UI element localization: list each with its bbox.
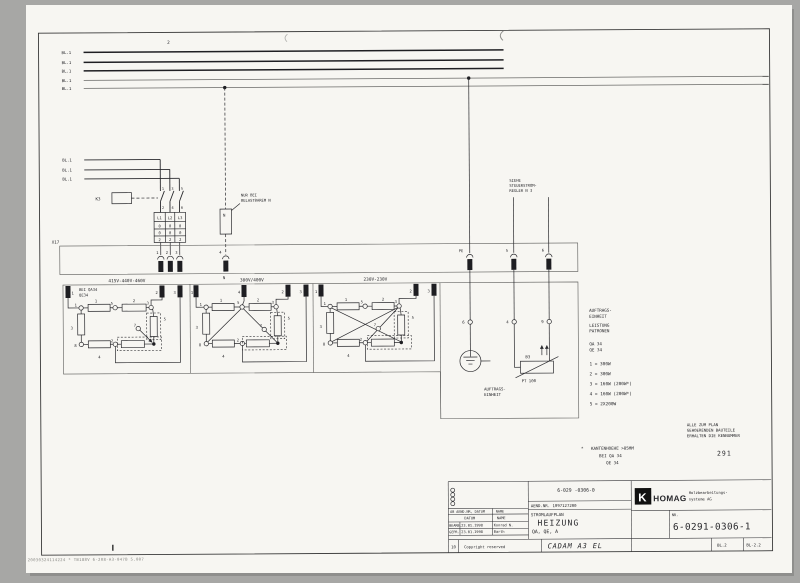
bus-label-4: BL.1 [62, 86, 72, 91]
drawing-title: HEIZUNG [537, 518, 579, 527]
scan-code: 20030324114224 * TB188V 6-208-A3-047B 5.… [28, 557, 145, 563]
bus-label-3: BL.1 [62, 78, 72, 83]
auftrags-label-1: AUFTRAGS- [484, 386, 506, 391]
company-line-1: Holzbearbeitungs- [689, 490, 728, 495]
legend-item-1: 1 = 300W [589, 361, 611, 367]
sheet-ref-top: 2 [167, 40, 170, 46]
block-header-l1: L1 [157, 215, 162, 220]
block-header-l2: L2 [168, 215, 173, 220]
company-line-2: systeme AG [689, 496, 713, 501]
sensor-type: PT 100 [522, 378, 537, 383]
bus-label-0: BL.1 [62, 50, 72, 55]
section-note-1: BEI QA34 [79, 287, 98, 292]
feeder-label-1: BL.1 [62, 167, 72, 172]
feeder-label-0: BL.1 [62, 157, 72, 162]
resistor-label: 2 [382, 297, 384, 302]
homag-logo-glyph: K [638, 492, 647, 504]
contact-pin-1: 1 [162, 187, 164, 191]
legend-unit-2: QE 34 [589, 347, 602, 352]
contact-pin-5: 5 [181, 187, 183, 191]
bearb-label: BEARB. [449, 524, 461, 528]
section-note-2: QE34 [79, 292, 89, 297]
terminal-label: 2 [409, 288, 411, 293]
contact-pin-2: 2 [162, 206, 164, 210]
resistor-label: 5 [164, 316, 166, 321]
drawing-number: 6-0291-0306-1 [673, 521, 751, 532]
note-nur-bei-2: BELASTBAREM N [241, 198, 271, 203]
sheet-number: BL.2 [717, 543, 727, 548]
legend-header-2: EINHEIT [589, 314, 607, 319]
terminal-label: 3 [299, 289, 301, 294]
cell-10: 10 [451, 544, 456, 549]
aend-number: AEND.NR. 1097127200 [531, 503, 577, 508]
terminal-label: 3 [427, 288, 429, 293]
block-cell: 2 [169, 237, 171, 242]
legend-item-4: 4 = 160W (200W*) [590, 391, 632, 397]
note-alle-3: ERHALTEN DIE KENNUMMER [687, 433, 741, 438]
legend-item-3: 3 = 160W (200W*) [590, 381, 632, 387]
resistor-label: 3 [71, 325, 73, 330]
doc-number-top: 6-029 -0306-0 [557, 488, 595, 494]
node-label: 5 [361, 299, 363, 304]
resistor-label: 5 [412, 315, 414, 320]
plan-type: STROMLAUFPLAN [531, 512, 564, 517]
contact-pin-6: 6 [181, 206, 183, 210]
next-sheet-ref: BL-2.2 [746, 542, 761, 547]
bus-label-2: BL.1 [62, 69, 72, 74]
block-header-l3: L3 [178, 215, 183, 220]
section-title-230v: 230V-230V [364, 277, 388, 283]
block-cell: 2 [179, 237, 181, 242]
resistor-label: 2 [133, 298, 135, 303]
node-label: 7 [260, 323, 262, 328]
terminal-label: 2 [281, 289, 283, 294]
revision-name-header: NAME [496, 510, 504, 514]
resistor-label: 3 [320, 324, 322, 329]
node-label: 7 [134, 323, 136, 328]
strip-designator: X17 [52, 240, 60, 245]
node-label: 7 [374, 322, 376, 327]
resistor-label: 5 [288, 316, 290, 321]
cad-system-label: CADAM A3 EL [548, 542, 603, 550]
node-label: 3 [272, 300, 274, 305]
kennummer: 291 [717, 449, 732, 457]
strip-pin-2: 2 [166, 250, 168, 255]
scan-tick-mark [112, 545, 114, 551]
section-title-380v: 380V/400V [240, 277, 264, 283]
nr-label: NR. [672, 513, 679, 517]
sensor-designator: B3 [525, 354, 530, 359]
legend-item-5: 5 = 2X200W [590, 401, 617, 407]
terminal-label: 2 [155, 290, 157, 295]
bearb-date: 23.01.1998 [461, 523, 483, 527]
strip-pin-pe: PE [459, 248, 464, 253]
feeder-label-2: BL.1 [62, 176, 72, 181]
section-title-415v: 415V-440V-460V [108, 278, 145, 284]
note-siehe-3: REGLER N 3 [509, 188, 532, 193]
resistor-label: 3 [196, 325, 198, 330]
column-datum: DATUM [464, 516, 476, 520]
contactor-designator: K3 [95, 196, 101, 201]
copyright-note: Copyright reserved [464, 544, 505, 549]
legend-header-1: AUFTRAGS- [589, 308, 612, 313]
block-cell: 2 [159, 237, 161, 242]
node-label: 3 [395, 299, 397, 304]
terminal-label: 3 [173, 290, 175, 295]
bus-label-1: BL.1 [62, 60, 72, 65]
note-kante-2: BEI QA 34 [599, 453, 622, 458]
legend-sub-1: LEISTUNG [589, 323, 610, 328]
note-kante-1: KANTENHOEHE >85MM [591, 446, 634, 451]
brand-name: HOMAG [653, 494, 686, 503]
resistor-label: 2 [257, 297, 259, 302]
node-label: 5 [237, 300, 239, 305]
node-label: 3 [147, 301, 149, 306]
drawing-subtitle: QA, QE, A [532, 529, 558, 535]
gepr-name: Barth [494, 530, 505, 534]
note-kante-3: QE 34 [606, 460, 619, 465]
legend-sub-2: PATRONEN [589, 328, 610, 333]
column-name: NAME [497, 516, 506, 520]
legend-item-2: 2 = 300W [590, 371, 612, 377]
auftrags-label-2: EINHEIT [484, 392, 501, 397]
node-label: 2 [237, 337, 239, 342]
scanned-schematic-sheet: 2 BL.1 BL.1 BL.1 BL.1 BL.1 BL.1 BL.1 BL.… [0, 0, 800, 583]
contact-pin-3: 3 [171, 187, 173, 191]
revision-header: AB AEND.NR, DATUM [450, 510, 485, 514]
sheet-footer: 20030324114224 * TB188V 6-208-A3-047B 5.… [28, 557, 145, 563]
gepr-date: 23.01.1998 [461, 530, 483, 534]
node-label: 2 [360, 337, 362, 342]
node-label: 5 [111, 301, 113, 306]
node-label: 2 [111, 338, 113, 343]
strip-pin-5: 5 [506, 248, 508, 253]
legend-unit-1: QA 34 [589, 341, 602, 346]
strip-pin-3: 3 [175, 250, 177, 255]
contact-pin-4: 4 [171, 206, 173, 210]
note-alle-1: ALLE ZUM PLAN [687, 422, 719, 427]
note-alle-2: GEHOERENDEN BAUTEILE [687, 427, 736, 432]
gepr-label: GEPR. [449, 530, 459, 534]
bearb-name: Konrad N. [494, 523, 514, 527]
